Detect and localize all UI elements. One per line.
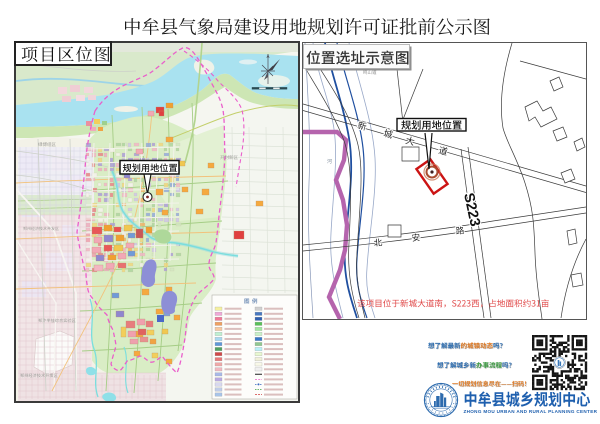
svg-text:ZHONG MOU URBAN AND RURAL PLAN: ZHONG MOU URBAN AND RURAL PLANNING CENTE…	[464, 409, 598, 414]
